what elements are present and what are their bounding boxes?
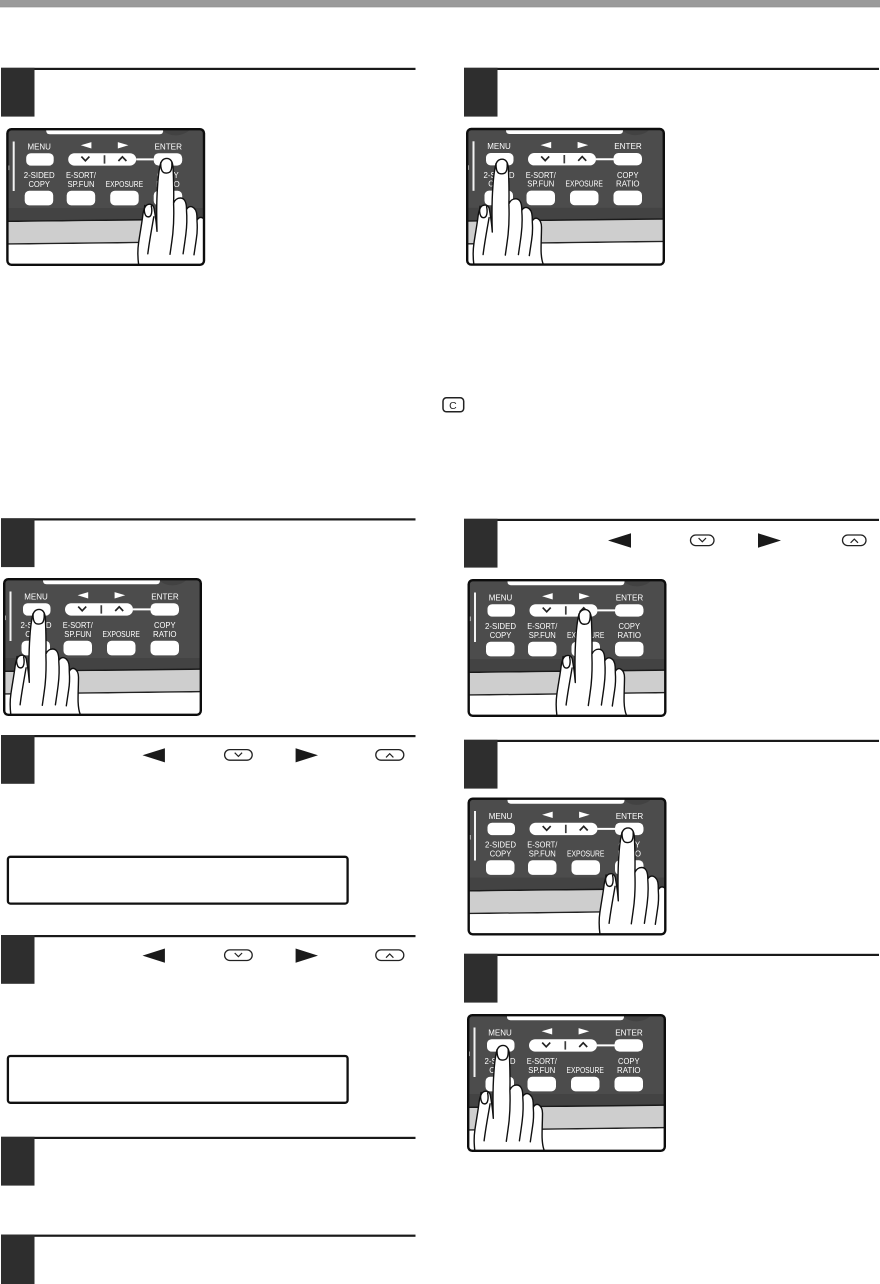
svg-text:C: C <box>449 400 457 412</box>
